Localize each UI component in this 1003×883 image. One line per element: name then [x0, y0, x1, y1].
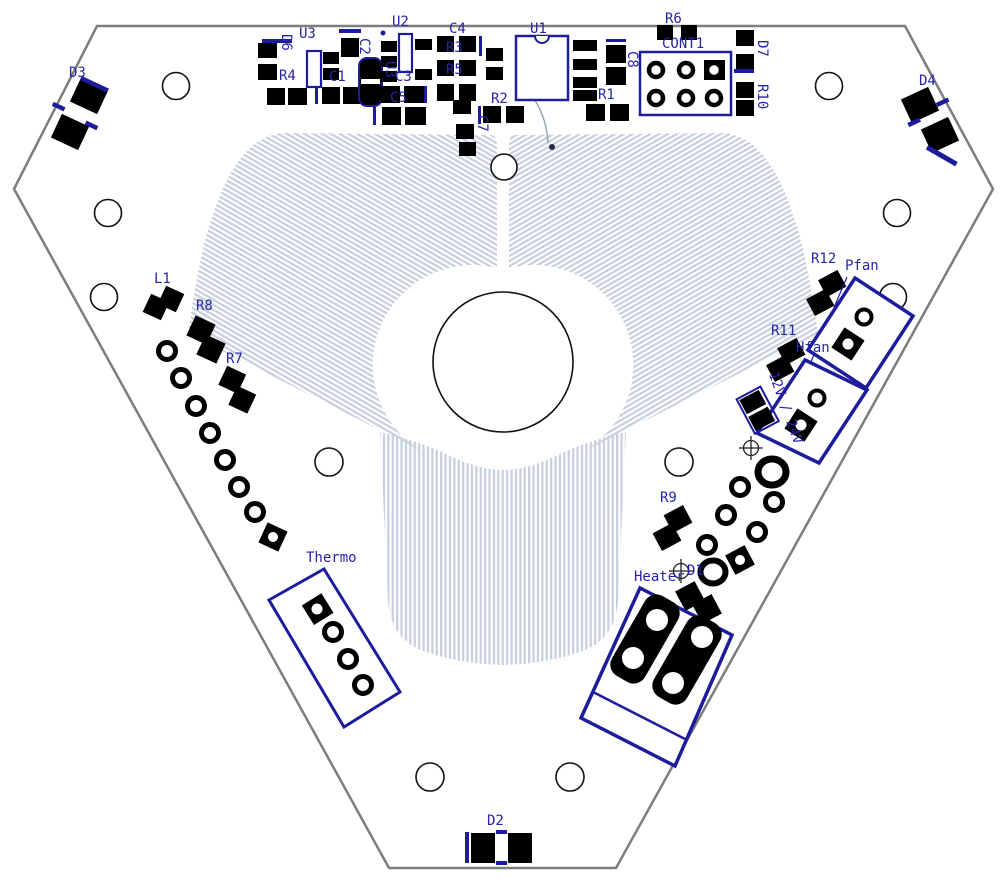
oval-pad: [758, 459, 786, 485]
silk-tick: [315, 86, 318, 104]
silk-tick: [465, 832, 469, 863]
refdes-d3: D3: [69, 66, 86, 81]
via-hole: [217, 452, 234, 469]
oval-pad: [701, 561, 726, 584]
pad: [258, 64, 277, 80]
pcb-layout-view: U3 U2 C4 U1 R6 CONT1 D7 D3 D4 D6 R4 C1 C…: [0, 0, 1003, 883]
pad: [573, 77, 597, 88]
pad: [415, 39, 432, 50]
pin-hole: [268, 532, 278, 542]
via-hole: [231, 479, 248, 496]
center-hole: [433, 292, 573, 432]
pad: [736, 30, 754, 46]
pad: [456, 124, 474, 139]
silk-tick: [606, 39, 626, 42]
pin-hole: [810, 391, 825, 406]
refdes-pfan: Pfan: [845, 259, 879, 274]
pin-hole: [707, 63, 721, 77]
pad: [586, 104, 605, 121]
pin-hole: [355, 677, 372, 694]
silk-tick: [734, 69, 754, 73]
pad: [573, 40, 597, 51]
pad: [459, 142, 476, 156]
pcb-drawing: [0, 0, 1003, 883]
pad: [606, 45, 626, 63]
refdes-d6: D6: [278, 34, 293, 51]
pad: [459, 84, 476, 101]
via-hole: [173, 370, 190, 387]
refdes-d4: D4: [919, 74, 936, 89]
mounting-hole: [315, 448, 343, 476]
u1-body-outline: [516, 36, 568, 100]
pad: [736, 100, 754, 116]
silk-tick: [479, 36, 482, 56]
silk-tick: [496, 830, 507, 834]
refdes-heater: Heater: [634, 570, 685, 585]
refdes-r4: R4: [279, 69, 296, 84]
pad: [506, 106, 524, 123]
mounting-hole: [91, 284, 118, 311]
pad: [415, 69, 432, 80]
pad: [322, 87, 340, 104]
refdes-c3: C3: [395, 70, 412, 85]
refdes-r10: R10: [754, 84, 769, 109]
pin1-dot: [381, 31, 386, 36]
pad: [381, 41, 397, 52]
pad: [453, 100, 471, 114]
pin-hole: [646, 609, 668, 631]
c2-stripe: [361, 79, 380, 84]
pad: [610, 104, 629, 121]
refdes-d2: D2: [487, 814, 504, 829]
refdes-u1: U1: [530, 22, 547, 37]
u2-body-outline: [399, 34, 412, 72]
refdes-thermo: Thermo: [306, 551, 357, 566]
refdes-c2: C2: [356, 38, 371, 55]
pin-hole: [691, 626, 713, 648]
u1-notch: [535, 36, 549, 43]
refdes-c7: C7: [474, 115, 489, 132]
refdes-c1: C1: [329, 70, 346, 85]
mounting-hole: [884, 200, 911, 227]
pad: [606, 67, 626, 85]
silk-tick: [339, 29, 361, 33]
refdes-u3: U3: [299, 27, 316, 42]
mounting-hole: [163, 73, 190, 100]
board-outline: [14, 26, 993, 868]
pad: [437, 84, 454, 101]
refdes-r3: R3: [446, 41, 463, 56]
pad: [323, 52, 339, 64]
refdes-r2: R2: [491, 92, 508, 107]
refdes-r9: R9: [660, 491, 677, 506]
pin-hole: [857, 310, 872, 325]
pad: [573, 90, 597, 101]
pad: [471, 833, 495, 863]
via-hole: [732, 479, 749, 496]
pad: [736, 54, 754, 70]
via-hole: [159, 343, 176, 360]
silk-tick: [424, 86, 427, 103]
refdes-r7: R7: [226, 352, 243, 367]
via-hole: [188, 398, 205, 415]
u3-body-outline: [307, 51, 321, 87]
pin-hole: [649, 91, 663, 105]
pin-hole: [649, 63, 663, 77]
pin-hole: [679, 63, 693, 77]
refdes-c8: C8: [624, 51, 639, 68]
refdes-r6: R6: [665, 12, 682, 27]
pad: [288, 88, 307, 105]
refdes-l1: L1: [154, 272, 171, 287]
mounting-hole: [416, 763, 444, 791]
refdes-r8: R8: [196, 299, 213, 314]
via-hole: [247, 504, 264, 521]
pin-hole: [707, 91, 721, 105]
pin-hole: [325, 624, 342, 641]
refdes-c5: C5: [390, 91, 407, 106]
pin-hole: [662, 672, 684, 694]
silk-tick: [373, 107, 376, 125]
pad: [404, 86, 425, 103]
pin-hole: [340, 651, 357, 668]
pad: [486, 67, 503, 80]
via-hole: [766, 494, 783, 511]
pin-hole: [843, 339, 854, 350]
mounting-hole: [665, 448, 693, 476]
refdes-r1: R1: [598, 88, 615, 103]
pad: [486, 48, 503, 61]
via-dot: [549, 144, 555, 150]
refdes-d1: D1: [687, 564, 704, 579]
refdes-r12: R12: [811, 252, 836, 267]
refdes-u2: U2: [392, 15, 409, 30]
pad: [736, 82, 754, 98]
pad: [267, 88, 285, 105]
pin-hole: [312, 604, 323, 615]
mounting-hole: [816, 73, 843, 100]
pad: [405, 107, 426, 125]
refdes-d7: D7: [754, 40, 769, 57]
refdes-cont1: CONT1: [662, 37, 704, 52]
via-hole: [718, 507, 735, 524]
pad: [508, 833, 532, 863]
refdes-r5: R5: [446, 63, 463, 78]
refdes-c4: C4: [449, 22, 466, 37]
pad: [573, 59, 597, 70]
via-hole: [749, 524, 766, 541]
pad: [258, 43, 277, 58]
mounting-hole: [556, 763, 584, 791]
pin-hole: [735, 555, 745, 565]
pin-hole: [679, 91, 693, 105]
via-hole: [202, 425, 219, 442]
pad: [382, 107, 401, 125]
via-hole: [699, 537, 716, 554]
refdes-hfan: Hfan: [796, 341, 830, 356]
refdes-r11: R11: [771, 324, 796, 339]
mounting-hole: [491, 154, 517, 180]
mounting-hole: [95, 200, 122, 227]
silk-tick: [496, 861, 507, 865]
pin-hole: [622, 647, 644, 669]
